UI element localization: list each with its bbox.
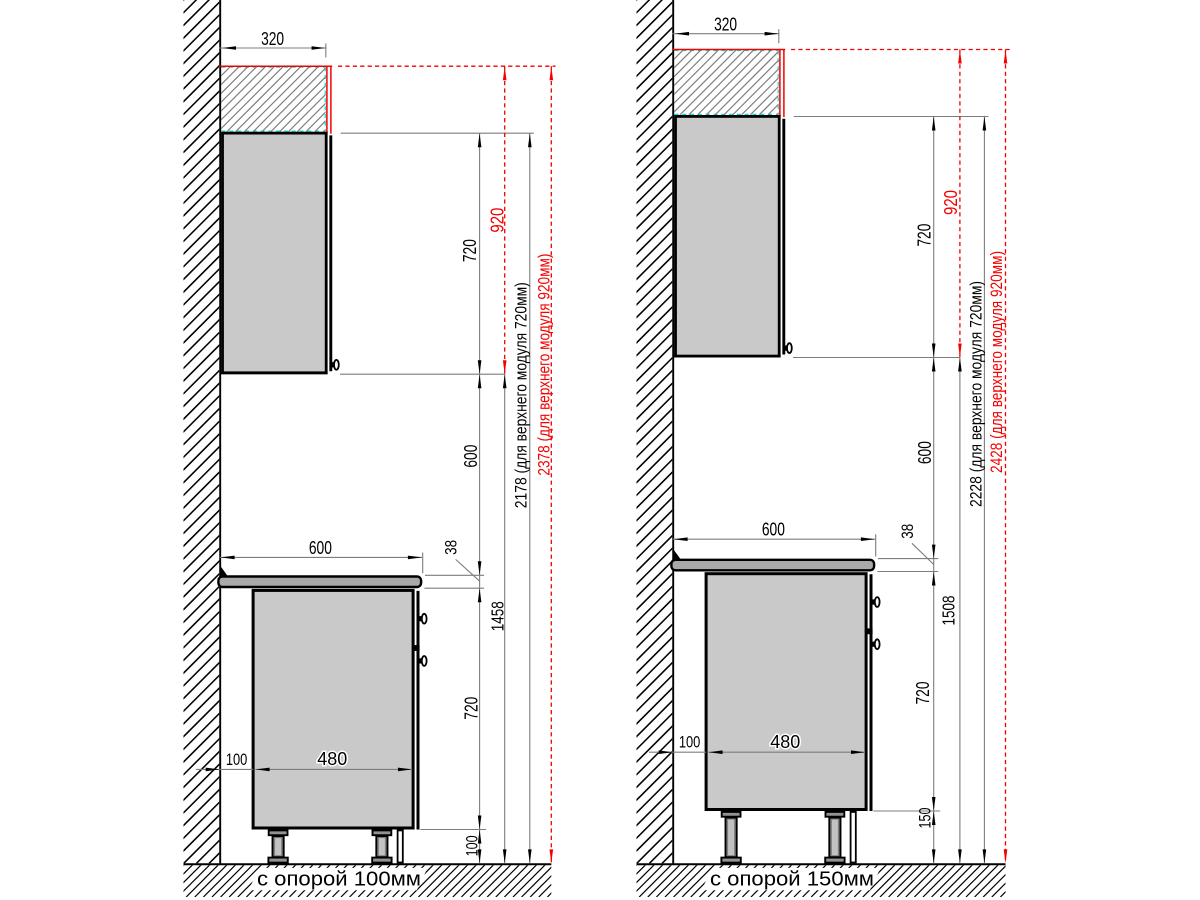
svg-text:с опорой 150мм: с опорой 150мм (710, 869, 874, 891)
svg-text:320: 320 (261, 29, 284, 49)
svg-text:320: 320 (714, 15, 737, 35)
svg-text:150: 150 (916, 808, 935, 829)
svg-text:38: 38 (442, 540, 461, 555)
svg-text:600: 600 (915, 441, 935, 464)
svg-text:2428 (для верхнего модуля 920м: 2428 (для верхнего модуля 920мм) (987, 251, 1006, 473)
svg-text:720: 720 (913, 682, 933, 705)
svg-text:2378 (для верхнего модуля 920м: 2378 (для верхнего модуля 920мм) (535, 254, 554, 476)
svg-text:1458: 1458 (488, 601, 508, 631)
svg-text:600: 600 (762, 520, 785, 540)
svg-text:100: 100 (463, 835, 482, 856)
svg-text:1508: 1508 (938, 596, 958, 626)
svg-text:920: 920 (486, 208, 507, 233)
svg-text:600: 600 (461, 445, 481, 468)
svg-text:38: 38 (898, 524, 917, 539)
svg-text:720: 720 (462, 697, 482, 720)
svg-text:480: 480 (770, 732, 800, 752)
svg-text:920: 920 (940, 190, 961, 215)
svg-text:100: 100 (679, 733, 701, 752)
svg-text:720: 720 (915, 224, 935, 247)
svg-text:2178 (для верхнего модуля 720м: 2178 (для верхнего модуля 720мм) (511, 282, 530, 508)
svg-text:720: 720 (460, 239, 480, 262)
svg-text:480: 480 (317, 749, 347, 769)
svg-text:100: 100 (226, 750, 248, 769)
svg-text:2228 (для верхнего модуля 720м: 2228 (для верхнего модуля 720мм) (967, 281, 986, 507)
svg-text:с опорой 100мм: с опорой 100мм (257, 869, 421, 891)
svg-text:600: 600 (309, 538, 332, 558)
